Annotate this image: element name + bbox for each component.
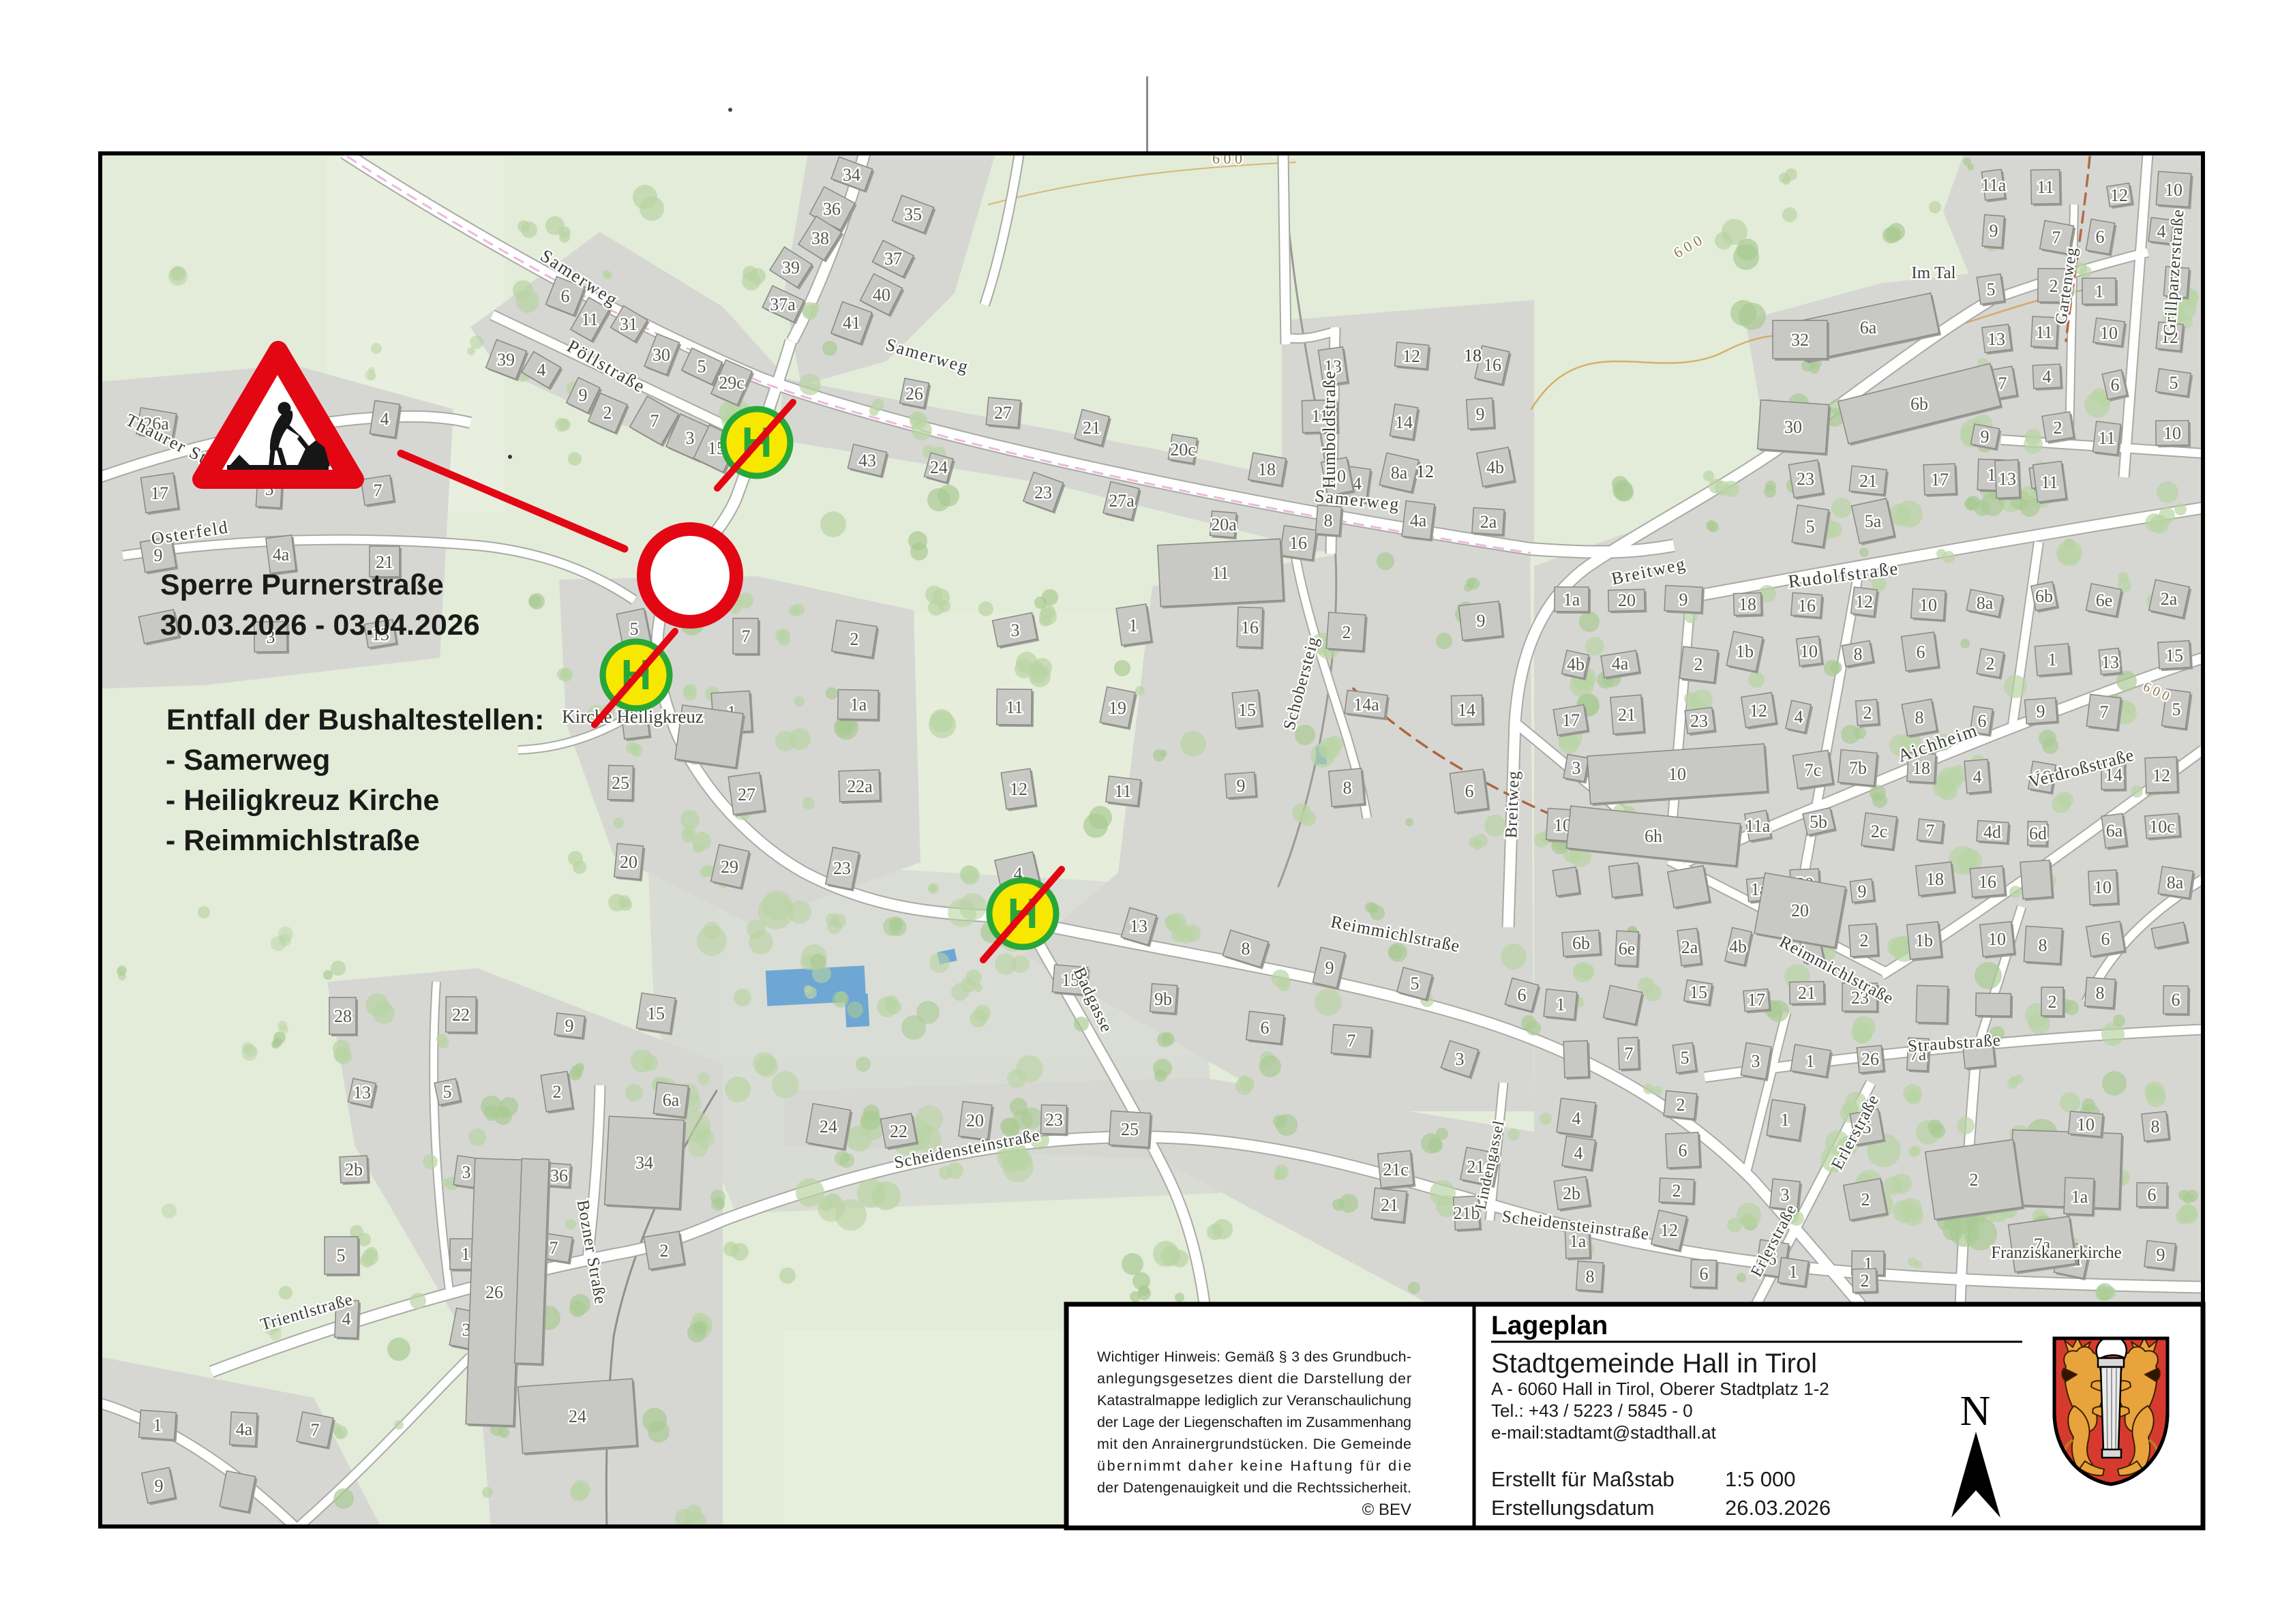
svg-text:2: 2 bbox=[1860, 931, 1869, 950]
svg-text:11: 11 bbox=[2041, 472, 2058, 492]
svg-text:9: 9 bbox=[1679, 590, 1688, 610]
svg-text:41: 41 bbox=[843, 313, 860, 333]
svg-text:34: 34 bbox=[843, 165, 860, 185]
svg-text:4: 4 bbox=[380, 409, 389, 429]
svg-text:13: 13 bbox=[2101, 652, 2119, 672]
svg-text:6: 6 bbox=[2172, 990, 2180, 1010]
svg-text:2: 2 bbox=[1863, 703, 1872, 723]
svg-text:4b: 4b bbox=[1567, 655, 1585, 674]
svg-text:17: 17 bbox=[151, 483, 168, 503]
svg-text:1b: 1b bbox=[1915, 931, 1933, 950]
svg-text:10: 10 bbox=[2163, 423, 2181, 443]
svg-text:4: 4 bbox=[2157, 222, 2166, 241]
svg-text:10c: 10c bbox=[2149, 817, 2175, 837]
svg-text:36: 36 bbox=[823, 199, 841, 219]
svg-text:17: 17 bbox=[1931, 470, 1949, 490]
svg-text:2: 2 bbox=[603, 403, 612, 423]
svg-text:3: 3 bbox=[1572, 758, 1581, 778]
svg-text:5: 5 bbox=[1806, 517, 1815, 537]
svg-text:Erstellungsdatum: Erstellungsdatum bbox=[1491, 1496, 1655, 1520]
svg-text:38: 38 bbox=[811, 228, 829, 248]
svg-text:Franziskanerkirche: Franziskanerkirche bbox=[1991, 1244, 2122, 1262]
svg-text:6b: 6b bbox=[1572, 933, 1590, 953]
svg-text:Humboldstraße: Humboldstraße bbox=[1319, 370, 1339, 488]
svg-text:14a: 14a bbox=[1353, 695, 1379, 715]
svg-text:43: 43 bbox=[858, 451, 876, 470]
svg-text:6d: 6d bbox=[2029, 824, 2047, 843]
svg-text:36: 36 bbox=[550, 1166, 568, 1186]
svg-text:7: 7 bbox=[1347, 1031, 1356, 1051]
svg-text:23: 23 bbox=[1797, 469, 1814, 489]
svg-text:9: 9 bbox=[579, 385, 588, 405]
svg-text:17: 17 bbox=[1747, 990, 1765, 1010]
svg-text:34: 34 bbox=[635, 1153, 653, 1173]
svg-text:30.03.2026 - 03.04.2026: 30.03.2026 - 03.04.2026 bbox=[160, 609, 480, 642]
svg-text:20a: 20a bbox=[1211, 515, 1237, 535]
svg-text:29: 29 bbox=[721, 857, 738, 877]
svg-text:28: 28 bbox=[334, 1006, 352, 1026]
svg-text:6: 6 bbox=[1700, 1264, 1709, 1284]
svg-text:7: 7 bbox=[311, 1420, 320, 1440]
svg-text:23: 23 bbox=[1034, 483, 1052, 502]
svg-text:31: 31 bbox=[620, 314, 637, 334]
svg-text:11: 11 bbox=[1006, 697, 1023, 717]
svg-text:37a: 37a bbox=[770, 295, 796, 314]
svg-text:10: 10 bbox=[1988, 929, 2006, 949]
svg-text:2a: 2a bbox=[2161, 589, 2178, 609]
svg-text:13: 13 bbox=[1998, 469, 2016, 489]
svg-text:16: 16 bbox=[1979, 872, 1996, 892]
svg-text:Wichtiger Hinweis: Gemäß § 3 d: Wichtiger Hinweis: Gemäß § 3 des Grundbu… bbox=[1097, 1349, 1411, 1365]
svg-text:22: 22 bbox=[452, 1005, 470, 1025]
svg-text:6: 6 bbox=[561, 286, 570, 306]
svg-text:15: 15 bbox=[1690, 982, 1707, 1002]
svg-text:11: 11 bbox=[581, 310, 598, 329]
svg-text:8: 8 bbox=[1854, 644, 1863, 664]
svg-text:4b: 4b bbox=[1729, 937, 1747, 957]
svg-text:9: 9 bbox=[1990, 221, 1998, 241]
svg-text:8: 8 bbox=[2151, 1117, 2160, 1137]
svg-text:6: 6 bbox=[2148, 1185, 2157, 1205]
svg-text:5: 5 bbox=[1987, 280, 1996, 299]
svg-text:Sperre Purnerstraße: Sperre Purnerstraße bbox=[160, 569, 444, 601]
svg-text:18: 18 bbox=[1258, 460, 1276, 479]
svg-text:21c: 21c bbox=[1383, 1160, 1409, 1179]
svg-text:8a: 8a bbox=[1977, 593, 1994, 613]
svg-text:7c: 7c bbox=[1805, 760, 1822, 780]
svg-text:32: 32 bbox=[1791, 330, 1809, 350]
svg-text:anlegungsgesetzes dient die Da: anlegungsgesetzes dient die Darstellung … bbox=[1097, 1370, 1411, 1387]
svg-text:1: 1 bbox=[1789, 1262, 1798, 1282]
svg-text:2: 2 bbox=[553, 1082, 562, 1102]
svg-text:21: 21 bbox=[1618, 705, 1636, 725]
svg-text:4: 4 bbox=[1795, 707, 1803, 727]
svg-text:26: 26 bbox=[1861, 1049, 1879, 1069]
svg-text:5a: 5a bbox=[1865, 511, 1882, 531]
svg-text:2: 2 bbox=[1672, 1181, 1681, 1201]
svg-text:4: 4 bbox=[2043, 367, 2052, 387]
svg-text:2b: 2b bbox=[1563, 1184, 1580, 1203]
svg-text:6e: 6e bbox=[2096, 590, 2113, 610]
svg-text:18: 18 bbox=[1739, 595, 1756, 614]
svg-text:24: 24 bbox=[930, 457, 948, 477]
svg-text:1: 1 bbox=[1129, 616, 1138, 635]
svg-text:5: 5 bbox=[1681, 1048, 1690, 1068]
svg-text:7: 7 bbox=[1926, 821, 1935, 841]
svg-text:8a: 8a bbox=[2167, 873, 2184, 892]
svg-text:Katastralmappe lediglich zur V: Katastralmappe lediglich zur Veranschaul… bbox=[1097, 1392, 1411, 1409]
svg-text:15: 15 bbox=[2165, 646, 2183, 665]
svg-text:- Heiligkreuz Kirche: - Heiligkreuz Kirche bbox=[166, 784, 439, 817]
svg-text:11: 11 bbox=[1114, 781, 1131, 801]
svg-text:37: 37 bbox=[884, 249, 902, 269]
svg-text:6: 6 bbox=[1465, 781, 1474, 801]
svg-text:9: 9 bbox=[565, 1016, 574, 1036]
svg-text:8: 8 bbox=[1324, 511, 1333, 530]
svg-text:9: 9 bbox=[1858, 882, 1867, 901]
svg-text:1: 1 bbox=[153, 1415, 162, 1435]
svg-text:1: 1 bbox=[462, 1244, 470, 1264]
svg-text:16: 16 bbox=[1798, 596, 1816, 616]
svg-text:27: 27 bbox=[994, 403, 1012, 423]
svg-text:10: 10 bbox=[2165, 180, 2182, 200]
svg-text:9: 9 bbox=[1325, 958, 1334, 978]
svg-text:1: 1 bbox=[2048, 650, 2057, 670]
svg-text:6a: 6a bbox=[663, 1090, 680, 1110]
svg-text:40: 40 bbox=[873, 285, 890, 305]
svg-text:5: 5 bbox=[630, 619, 639, 639]
svg-text:20: 20 bbox=[966, 1111, 984, 1130]
svg-text:6: 6 bbox=[2101, 929, 2110, 949]
svg-text:Im Tal: Im Tal bbox=[1911, 264, 1955, 282]
svg-text:20: 20 bbox=[620, 852, 637, 872]
svg-text:6: 6 bbox=[1518, 985, 1527, 1005]
svg-text:2: 2 bbox=[1342, 622, 1351, 642]
svg-text:1:5 000: 1:5 000 bbox=[1725, 1467, 1795, 1491]
svg-text:der Datengenauigkeit und die R: der Datengenauigkeit und die Rechtssiche… bbox=[1097, 1479, 1411, 1496]
svg-text:2: 2 bbox=[660, 1241, 669, 1261]
svg-text:4a: 4a bbox=[236, 1419, 253, 1439]
svg-text:8: 8 bbox=[2096, 983, 2105, 1003]
svg-text:7: 7 bbox=[550, 1238, 558, 1258]
svg-text:13: 13 bbox=[1130, 916, 1147, 936]
svg-text:4: 4 bbox=[1574, 1143, 1583, 1163]
svg-text:9: 9 bbox=[2157, 1245, 2165, 1265]
svg-text:6h: 6h bbox=[1645, 826, 1662, 846]
svg-text:35: 35 bbox=[904, 205, 922, 224]
svg-text:24: 24 bbox=[820, 1117, 837, 1137]
svg-text:6a: 6a bbox=[1860, 318, 1877, 337]
svg-text:8: 8 bbox=[1586, 1267, 1595, 1287]
svg-text:6: 6 bbox=[1679, 1141, 1687, 1160]
svg-text:1b: 1b bbox=[1736, 642, 1754, 661]
svg-text:Stadtgemeinde Hall in Tirol: Stadtgemeinde Hall in Tirol bbox=[1491, 1349, 1817, 1379]
svg-text:20: 20 bbox=[1791, 901, 1809, 920]
svg-text:4d: 4d bbox=[1983, 822, 2001, 842]
svg-text:Erstellt für Maßstab: Erstellt für Maßstab bbox=[1491, 1467, 1675, 1491]
svg-text:24: 24 bbox=[569, 1407, 586, 1426]
svg-text:6a: 6a bbox=[2106, 821, 2123, 841]
svg-text:12: 12 bbox=[2152, 766, 2170, 785]
svg-text:11a: 11a bbox=[1745, 816, 1771, 836]
svg-text:14: 14 bbox=[1458, 700, 1475, 720]
svg-text:4: 4 bbox=[342, 1309, 351, 1329]
svg-text:- Reimmichlstraße: - Reimmichlstraße bbox=[166, 824, 420, 857]
svg-text:1: 1 bbox=[1781, 1110, 1790, 1130]
svg-text:26.03.2026: 26.03.2026 bbox=[1725, 1496, 1831, 1520]
svg-text:e-mail:stadtamt@stadthall.at: e-mail:stadtamt@stadthall.at bbox=[1491, 1422, 1717, 1443]
svg-text:Tel.: +43 / 5223 / 5845 - 0: Tel.: +43 / 5223 / 5845 - 0 bbox=[1491, 1400, 1693, 1421]
svg-text:21: 21 bbox=[1381, 1195, 1398, 1215]
svg-text:3: 3 bbox=[686, 428, 695, 448]
svg-text:7b: 7b bbox=[1849, 758, 1867, 778]
svg-text:15: 15 bbox=[647, 1004, 665, 1023]
svg-text:7: 7 bbox=[742, 627, 751, 646]
svg-text:6: 6 bbox=[1261, 1018, 1270, 1038]
svg-text:7: 7 bbox=[2100, 702, 2109, 722]
svg-text:25: 25 bbox=[1121, 1119, 1139, 1139]
svg-text:4a: 4a bbox=[1410, 511, 1427, 530]
svg-text:A - 6060 Hall in Tirol, Oberer: A - 6060 Hall in Tirol, Oberer Stadtplat… bbox=[1491, 1379, 1829, 1399]
svg-text:10: 10 bbox=[1800, 642, 1818, 661]
svg-text:7: 7 bbox=[1998, 374, 2007, 393]
svg-text:8: 8 bbox=[1343, 778, 1352, 798]
svg-text:20: 20 bbox=[1618, 590, 1636, 610]
svg-text:2: 2 bbox=[1986, 654, 1995, 674]
svg-text:16: 16 bbox=[1484, 355, 1501, 375]
svg-text:12: 12 bbox=[1416, 462, 1434, 481]
svg-text:4: 4 bbox=[1572, 1109, 1581, 1128]
svg-text:5: 5 bbox=[337, 1246, 346, 1265]
svg-text:10: 10 bbox=[2094, 877, 2112, 897]
svg-text:25: 25 bbox=[612, 773, 629, 793]
svg-text:8: 8 bbox=[1915, 708, 1924, 727]
svg-text:2: 2 bbox=[850, 629, 859, 649]
svg-text:10: 10 bbox=[2100, 323, 2118, 343]
svg-text:20c: 20c bbox=[1170, 440, 1196, 460]
svg-text:1a: 1a bbox=[2071, 1187, 2088, 1207]
svg-text:3: 3 bbox=[462, 1162, 471, 1182]
svg-text:19: 19 bbox=[1109, 698, 1126, 718]
svg-text:Entfall der Bushaltestellen:: Entfall der Bushaltestellen: bbox=[166, 704, 544, 736]
svg-text:11: 11 bbox=[1212, 563, 1229, 583]
svg-text:2b: 2b bbox=[345, 1160, 363, 1179]
svg-text:21: 21 bbox=[1798, 983, 1816, 1003]
svg-text:2: 2 bbox=[1970, 1170, 1979, 1190]
svg-text:2c: 2c bbox=[1871, 822, 1888, 841]
svg-text:11: 11 bbox=[2035, 322, 2052, 342]
svg-text:4: 4 bbox=[537, 360, 546, 380]
svg-text:8: 8 bbox=[1242, 939, 1250, 959]
svg-text:9: 9 bbox=[2037, 702, 2045, 721]
svg-text:18: 18 bbox=[1926, 869, 1944, 889]
svg-text:7: 7 bbox=[374, 481, 382, 500]
svg-text:23: 23 bbox=[1045, 1110, 1063, 1130]
svg-text:2a: 2a bbox=[1681, 937, 1698, 957]
svg-text:17: 17 bbox=[1562, 710, 1580, 730]
svg-text:4a: 4a bbox=[273, 545, 290, 565]
svg-text:23: 23 bbox=[1690, 711, 1708, 731]
svg-text:5: 5 bbox=[2170, 373, 2178, 393]
svg-text:9: 9 bbox=[155, 1476, 164, 1496]
svg-text:1: 1 bbox=[1806, 1051, 1815, 1071]
svg-text:26: 26 bbox=[485, 1282, 503, 1302]
svg-text:11: 11 bbox=[2037, 177, 2054, 197]
svg-text:22a: 22a bbox=[847, 777, 873, 796]
svg-text:2: 2 bbox=[2048, 992, 2057, 1012]
svg-text:- Samerweg: - Samerweg bbox=[166, 744, 330, 777]
svg-text:1: 1 bbox=[1557, 995, 1565, 1014]
svg-text:29c: 29c bbox=[719, 373, 745, 393]
svg-text:2a: 2a bbox=[1480, 512, 1497, 532]
svg-text:1a: 1a bbox=[1563, 590, 1580, 610]
svg-text:5: 5 bbox=[443, 1082, 452, 1102]
svg-text:12: 12 bbox=[1010, 779, 1027, 799]
svg-text:14: 14 bbox=[1395, 412, 1413, 432]
svg-text:18: 18 bbox=[1464, 346, 1482, 365]
svg-text:16: 16 bbox=[1289, 533, 1307, 553]
svg-text:12: 12 bbox=[1402, 346, 1420, 366]
svg-text:6: 6 bbox=[1978, 711, 1987, 731]
svg-text:13: 13 bbox=[1987, 329, 2005, 349]
svg-text:10: 10 bbox=[2077, 1115, 2095, 1134]
svg-text:1: 1 bbox=[2095, 282, 2104, 301]
svg-text:4: 4 bbox=[1973, 767, 1982, 787]
svg-text:15: 15 bbox=[1238, 700, 1256, 720]
svg-text:11a: 11a bbox=[1981, 175, 2007, 195]
svg-text:13: 13 bbox=[353, 1083, 371, 1102]
svg-text:27a: 27a bbox=[1109, 491, 1135, 511]
svg-text:22: 22 bbox=[890, 1122, 907, 1141]
svg-text:© BEV: © BEV bbox=[1362, 1501, 1411, 1519]
svg-text:27: 27 bbox=[738, 785, 755, 805]
svg-text:mit den Anrainergrundstücken.: mit den Anrainergrundstücken. Die Gemein… bbox=[1097, 1436, 1411, 1452]
svg-text:2: 2 bbox=[1861, 1271, 1870, 1291]
svg-text:2: 2 bbox=[1677, 1095, 1685, 1115]
svg-text:4b: 4b bbox=[1486, 457, 1504, 477]
svg-text:9: 9 bbox=[1477, 611, 1486, 631]
svg-text:21: 21 bbox=[1859, 471, 1877, 491]
svg-text:der Lage der Liegenschaften im: der Lage der Liegenschaften im Zusammenh… bbox=[1097, 1414, 1411, 1430]
svg-text:30: 30 bbox=[652, 345, 670, 365]
svg-text:N: N bbox=[1960, 1388, 1991, 1434]
svg-text:2: 2 bbox=[1694, 655, 1703, 674]
svg-text:21: 21 bbox=[1083, 418, 1100, 438]
svg-text:6: 6 bbox=[2111, 375, 2120, 395]
svg-text:7: 7 bbox=[650, 411, 659, 431]
svg-text:Breitweg: Breitweg bbox=[1502, 770, 1522, 839]
svg-text:4a: 4a bbox=[1612, 654, 1629, 674]
svg-text:1a: 1a bbox=[850, 695, 867, 715]
svg-text:5: 5 bbox=[1411, 974, 1420, 993]
svg-text:26: 26 bbox=[905, 384, 923, 404]
svg-text:3: 3 bbox=[1752, 1051, 1760, 1071]
svg-text:2: 2 bbox=[2054, 418, 2062, 438]
svg-text:9: 9 bbox=[1237, 776, 1246, 796]
svg-text:9: 9 bbox=[1981, 427, 1990, 447]
svg-text:9: 9 bbox=[1476, 404, 1485, 424]
svg-text:Lageplan: Lageplan bbox=[1491, 1311, 1608, 1340]
svg-text:9b: 9b bbox=[1154, 989, 1172, 1009]
svg-text:39: 39 bbox=[497, 350, 515, 370]
svg-text:12: 12 bbox=[1750, 701, 1767, 721]
svg-text:8: 8 bbox=[2039, 935, 2047, 955]
svg-text:10: 10 bbox=[1668, 764, 1686, 784]
svg-text:10: 10 bbox=[1919, 595, 1937, 615]
svg-text:6b: 6b bbox=[1910, 394, 1928, 414]
svg-text:12: 12 bbox=[1855, 592, 1873, 612]
svg-text:30: 30 bbox=[1784, 417, 1802, 437]
svg-text:6e: 6e bbox=[1619, 939, 1636, 959]
svg-text:7: 7 bbox=[2052, 228, 2061, 247]
svg-text:23: 23 bbox=[833, 858, 851, 878]
svg-text:5b: 5b bbox=[1810, 812, 1827, 832]
svg-text:8a: 8a bbox=[1391, 463, 1408, 483]
svg-text:3: 3 bbox=[1456, 1049, 1465, 1069]
svg-text:12: 12 bbox=[2110, 185, 2128, 205]
svg-text:2: 2 bbox=[1861, 1190, 1870, 1209]
svg-text:11: 11 bbox=[2098, 428, 2115, 448]
svg-text:5: 5 bbox=[697, 357, 706, 376]
svg-text:7: 7 bbox=[1625, 1044, 1634, 1064]
svg-text:3: 3 bbox=[1011, 620, 1020, 640]
svg-text:6: 6 bbox=[2096, 227, 2105, 247]
svg-text:6b: 6b bbox=[2035, 586, 2053, 606]
svg-text:5: 5 bbox=[2172, 700, 2181, 719]
svg-text:6: 6 bbox=[1917, 642, 1925, 662]
svg-text:16: 16 bbox=[1241, 618, 1259, 637]
svg-text:12: 12 bbox=[1660, 1220, 1678, 1240]
svg-text:39: 39 bbox=[782, 258, 800, 277]
